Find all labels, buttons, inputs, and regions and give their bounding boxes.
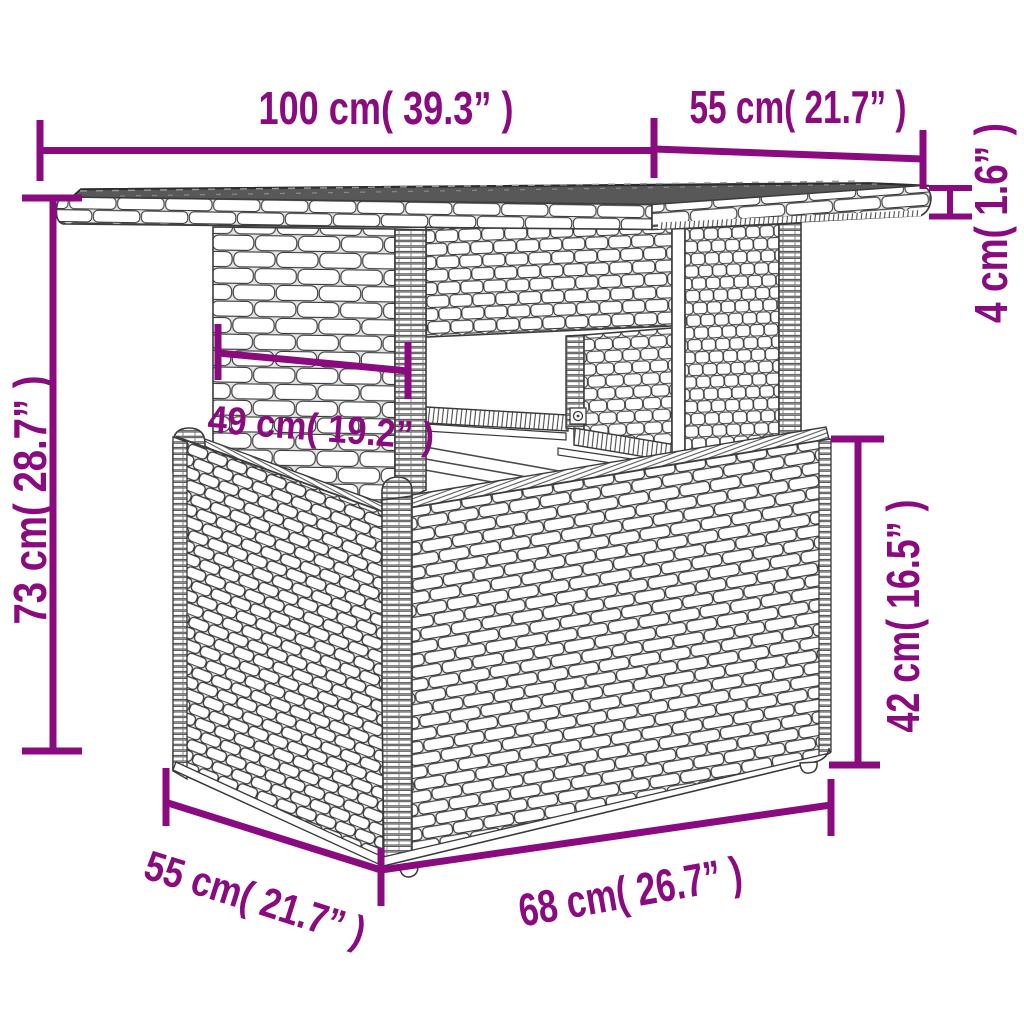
svg-text:42 cm( 16.5” ): 42 cm( 16.5” ) (877, 500, 929, 733)
svg-text:4 cm( 1.6” ): 4 cm( 1.6” ) (965, 123, 1017, 323)
svg-text:55 cm( 21.7” ): 55 cm( 21.7” ) (690, 81, 907, 133)
svg-text:73 cm( 28.7” ): 73 cm( 28.7” ) (4, 376, 56, 625)
svg-text:100 cm( 39.3” ): 100 cm( 39.3” ) (259, 82, 514, 134)
